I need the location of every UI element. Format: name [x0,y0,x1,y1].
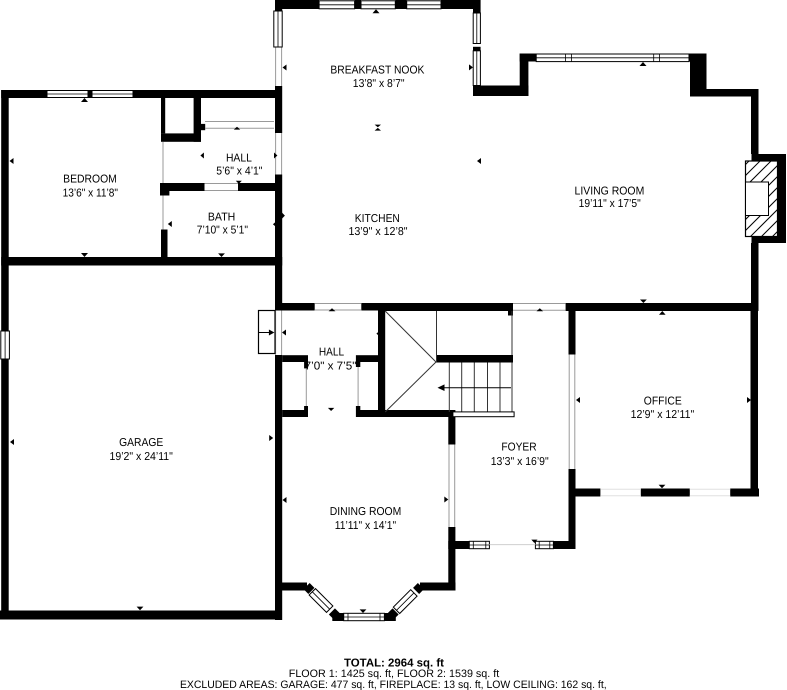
svg-text:19’11" x 17’5": 19’11" x 17’5" [579,198,641,210]
svg-text:HALL: HALL [226,153,252,165]
svg-text:7’10" x 5’1": 7’10" x 5’1" [197,224,248,236]
svg-text:7’0" x 7’5": 7’0" x 7’5" [305,360,357,372]
svg-text:LIVING ROOM: LIVING ROOM [575,185,645,197]
svg-text:EXCLUDED AREAS: GARAGE: 477 sq: EXCLUDED AREAS: GARAGE: 477 sq. ft, FIRE… [180,679,607,690]
svg-text:13’8" x 8’7": 13’8" x 8’7" [353,78,405,90]
svg-text:13’9" x 12’8": 13’9" x 12’8" [348,226,407,238]
svg-text:12’9" x 12’11": 12’9" x 12’11" [631,409,695,421]
svg-text:11’11" x 14’1": 11’11" x 14’1" [335,520,396,532]
svg-text:19’2" x 24’11": 19’2" x 24’11" [110,451,173,463]
svg-text:5’6" x 4’1": 5’6" x 4’1" [216,165,262,177]
svg-text:DINING ROOM: DINING ROOM [330,506,402,518]
svg-text:OFFICE: OFFICE [644,396,682,408]
svg-text:13’3" x 16’9": 13’3" x 16’9" [491,456,549,468]
svg-text:BATH: BATH [208,212,235,224]
svg-text:BEDROOM: BEDROOM [63,174,117,186]
svg-text:13’6" x 11’8": 13’6" x 11’8" [63,188,118,200]
svg-text:HALL: HALL [319,347,345,359]
svg-text:GARAGE: GARAGE [119,437,163,449]
svg-text:KITCHEN: KITCHEN [355,213,400,225]
svg-text:BREAKFAST NOOK: BREAKFAST NOOK [330,65,424,77]
svg-text:FOYER: FOYER [501,442,536,454]
